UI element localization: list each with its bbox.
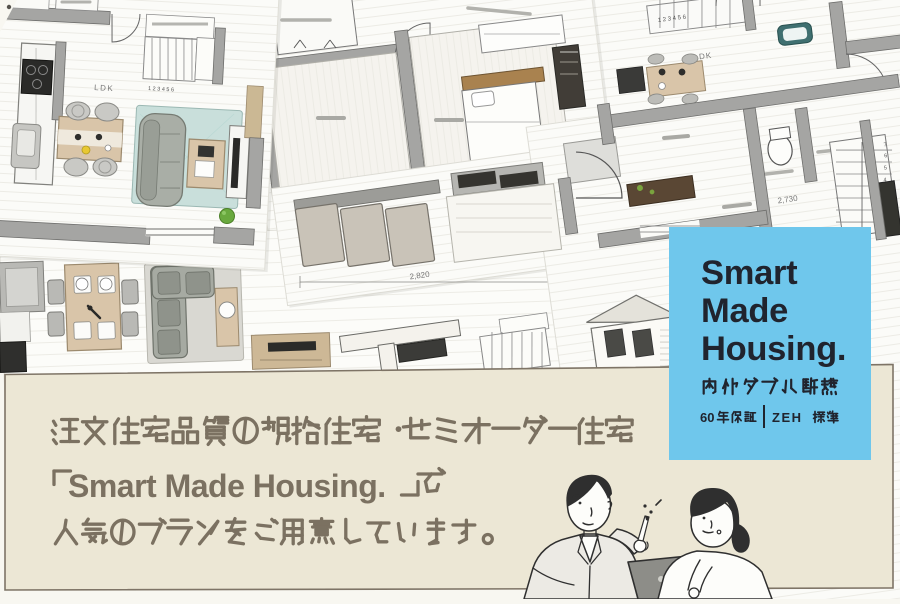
- svg-text:Smart: Smart: [701, 254, 798, 292]
- svg-text:LDK: LDK: [94, 83, 115, 93]
- svg-text:ZEH: ZEH: [772, 410, 803, 425]
- svg-text:Housing.: Housing.: [701, 330, 846, 368]
- svg-text:Made: Made: [701, 292, 788, 330]
- svg-text:60: 60: [700, 410, 714, 425]
- svg-text:Smart Made Housing.: Smart Made Housing.: [68, 468, 386, 504]
